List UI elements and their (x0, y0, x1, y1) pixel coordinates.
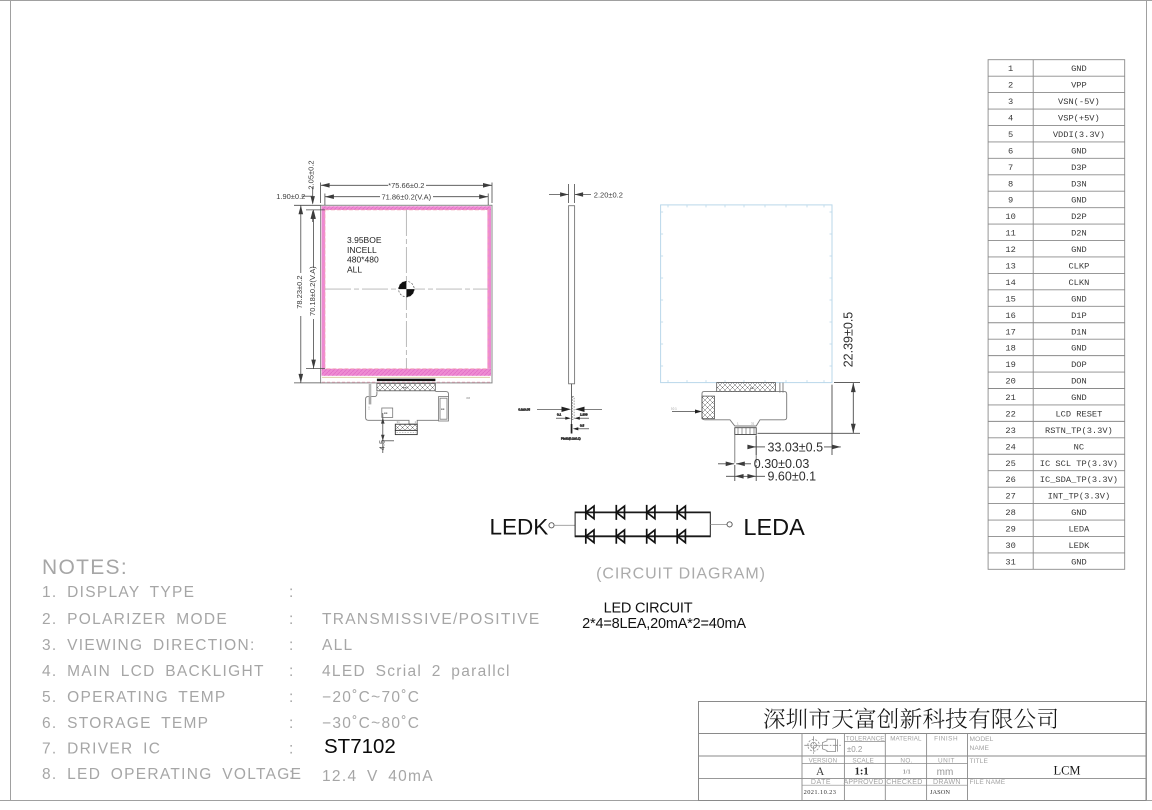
svg-text:NO.: NO. (900, 758, 913, 765)
svg-text:A: A (816, 766, 825, 778)
svg-text:11: 11 (1005, 229, 1015, 239)
svg-text:6: 6 (1008, 146, 1013, 156)
svg-text:1.90±0.2: 1.90±0.2 (276, 192, 305, 201)
svg-text:D2P: D2P (1071, 212, 1087, 222)
svg-text:GND: GND (1071, 294, 1087, 304)
svg-text:12.4 V 40mA: 12.4 V 40mA (322, 768, 434, 785)
svg-text:0.5: 0.5 (580, 424, 585, 428)
svg-text:1: 1 (737, 422, 739, 426)
svg-text:TITLE: TITLE (970, 758, 989, 765)
svg-text:2: 2 (1008, 81, 1013, 91)
svg-text:−30˚C~80˚C: −30˚C~80˚C (322, 715, 420, 732)
svg-text:D2N: D2N (1071, 229, 1087, 239)
svg-text:1/1: 1/1 (903, 769, 911, 776)
svg-text:13: 13 (1005, 262, 1015, 272)
svg-text:GND: GND (1071, 64, 1087, 74)
svg-text:D1P: D1P (1071, 311, 1087, 321)
svg-text:DOP: DOP (1071, 360, 1087, 370)
svg-text:■■□: ■■□ (750, 386, 756, 390)
svg-text:DON: DON (1071, 377, 1087, 387)
svg-text:12: 12 (1005, 245, 1015, 255)
svg-text:LCM: LCM (1053, 763, 1080, 777)
svg-text:22: 22 (1005, 409, 1015, 419)
svg-text:2. POLARIZER MODE: 2. POLARIZER MODE (42, 611, 228, 628)
svg-text:DRAWN: DRAWN (933, 779, 961, 786)
svg-text:(CIRCUIT DIAGRAM): (CIRCUIT DIAGRAM) (596, 565, 766, 582)
svg-text:33.03±0.5: 33.03±0.5 (768, 440, 824, 454)
svg-text:23: 23 (1005, 426, 1015, 436)
svg-text::: : (289, 584, 295, 601)
svg-text:VSN(-5V): VSN(-5V) (1058, 97, 1100, 107)
svg-text:78.23±0.2: 78.23±0.2 (295, 275, 304, 308)
svg-text:APPROVED: APPROVED (844, 779, 884, 786)
svg-text:15: 15 (1005, 294, 1015, 304)
svg-text::: : (289, 741, 295, 758)
svg-text:ST7102: ST7102 (324, 735, 396, 758)
svg-text:NC: NC (1074, 442, 1084, 452)
svg-text:LEDA: LEDA (743, 514, 805, 540)
svg-text:FINISH: FINISH (934, 735, 958, 742)
svg-text:D1N: D1N (1071, 327, 1087, 337)
svg-text:19: 19 (1005, 360, 1015, 370)
svg-text:■■: ■■ (441, 407, 445, 411)
svg-text:SCALE: SCALE (852, 758, 873, 765)
svg-text:21: 21 (1005, 393, 1015, 403)
svg-text:2.20±0.2: 2.20±0.2 (594, 190, 623, 199)
svg-text:□□: □□ (367, 406, 371, 410)
svg-text:0.1: 0.1 (557, 413, 562, 417)
svg-text:JASON: JASON (930, 789, 950, 796)
svg-text:VSP(+5V): VSP(+5V) (1058, 114, 1100, 124)
svg-text:GND: GND (1071, 508, 1087, 518)
svg-text:GND: GND (1071, 393, 1087, 403)
svg-text:±0.2: ±0.2 (847, 745, 863, 754)
svg-text:24: 24 (1005, 442, 1015, 452)
svg-text:7: 7 (1008, 163, 1013, 173)
svg-text:GND: GND (1071, 344, 1087, 354)
svg-text::: : (289, 689, 295, 706)
svg-text:25: 25 (1005, 459, 1015, 469)
svg-text:30: 30 (1005, 541, 1015, 551)
svg-text:−20˚C~70˚C: −20˚C~70˚C (322, 689, 420, 706)
svg-text:8. LED OPERATING VOLTAGE: 8. LED OPERATING VOLTAGE (42, 766, 302, 783)
svg-text:GND: GND (1071, 245, 1087, 255)
svg-text:■■: ■■ (384, 411, 388, 415)
svg-text:70.18±0.2(V.A): 70.18±0.2(V.A) (308, 266, 317, 316)
svg-text:FILE NAME: FILE NAME (970, 779, 1006, 786)
svg-text:RSTN_TP(3.3V): RSTN_TP(3.3V) (1045, 426, 1113, 436)
svg-text:NOTES:: NOTES: (42, 556, 128, 579)
svg-text:4LED Scrial 2 parallcl: 4LED Scrial 2 parallcl (322, 663, 511, 680)
svg-text:GND: GND (1071, 557, 1087, 567)
svg-text:71.86±0.2(V.A): 71.86±0.2(V.A) (381, 192, 431, 201)
svg-text:4: 4 (1008, 114, 1013, 124)
svg-text:1: 1 (1008, 64, 1013, 74)
svg-text:1. DISPLAY TYPE: 1. DISPLAY TYPE (42, 584, 195, 601)
svg-text:TRANSMISSIVE/POSITIVE: TRANSMISSIVE/POSITIVE (322, 611, 541, 628)
svg-text:3M: 3M (466, 396, 471, 400)
svg-text:GND: GND (1071, 146, 1087, 156)
svg-text:10: 10 (1005, 212, 1015, 222)
svg-text:VPP: VPP (1071, 81, 1087, 91)
svg-text:INT_TP(3.3V): INT_TP(3.3V) (1048, 492, 1111, 502)
svg-text:9.60±0.1: 9.60±0.1 (768, 470, 817, 484)
svg-text:480*480: 480*480 (347, 255, 379, 265)
svg-text::: : (289, 663, 295, 680)
svg-text:LED CIRCUIT: LED CIRCUIT (604, 601, 693, 617)
svg-text:5. OPERATING TEMP: 5. OPERATING TEMP (42, 689, 227, 706)
svg-text:2.05±0.2: 2.05±0.2 (306, 160, 315, 189)
svg-text::: : (289, 637, 295, 654)
svg-text:16: 16 (1005, 311, 1015, 321)
svg-text:4.5: 4.5 (377, 440, 386, 450)
svg-text:D3P: D3P (1071, 163, 1087, 173)
svg-text:CHECKED: CHECKED (886, 779, 922, 786)
svg-text:31: 31 (751, 422, 755, 426)
svg-text:9: 9 (1008, 196, 1013, 206)
svg-text:1: 1 (415, 420, 417, 424)
svg-text::: : (289, 611, 295, 628)
svg-text:ALL: ALL (347, 264, 362, 274)
svg-text:20: 20 (1005, 377, 1015, 387)
svg-text:GND: GND (1071, 196, 1087, 206)
svg-text:NAME: NAME (970, 745, 990, 752)
svg-text:1:1: 1:1 (855, 767, 869, 778)
svg-text:3. VIEWING DIRECTION:: 3. VIEWING DIRECTION: (42, 637, 256, 654)
svg-text:CLKN: CLKN (1068, 278, 1089, 288)
svg-text:LCD RESET: LCD RESET (1055, 409, 1102, 419)
svg-text:*75.66±0.2: *75.66±0.2 (388, 181, 424, 190)
svg-text:2*4=8LEA,20mA*2=40mA: 2*4=8LEA,20mA*2=40mA (582, 616, 746, 632)
svg-text:17: 17 (1005, 327, 1015, 337)
svg-text:TOLERANCE: TOLERANCE (846, 735, 885, 742)
svg-text:27: 27 (1005, 492, 1015, 502)
svg-text:2021.10.23: 2021.10.23 (804, 789, 837, 796)
svg-text:D3N: D3N (1071, 179, 1087, 189)
svg-text:26: 26 (1005, 475, 1015, 485)
svg-text:VERSION: VERSION (809, 758, 838, 765)
svg-text:28: 28 (1005, 508, 1015, 518)
svg-text:VDDI(3.3V): VDDI(3.3V) (1053, 130, 1105, 140)
svg-text:29: 29 (1005, 525, 1015, 535)
svg-text:ALL: ALL (322, 637, 353, 654)
svg-text:Pin31(0.2±0.1): Pin31(0.2±0.1) (561, 437, 581, 441)
svg-text:31: 31 (1005, 557, 1015, 567)
svg-text:MATERIAL: MATERIAL (890, 735, 922, 742)
svg-text:INCELL: INCELL (347, 245, 377, 255)
svg-text:IC SCL TP(3.3V): IC SCL TP(3.3V) (1040, 459, 1118, 469)
svg-text:10.1: 10.1 (671, 407, 677, 411)
svg-text:1.309: 1.309 (580, 413, 588, 417)
svg-text:LEDK: LEDK (490, 515, 549, 540)
svg-text:6. STORAGE TEMP: 6. STORAGE TEMP (42, 715, 209, 732)
svg-text:5: 5 (1008, 130, 1013, 140)
svg-text:CLKP: CLKP (1068, 262, 1089, 272)
svg-text:3.95BOE: 3.95BOE (347, 235, 382, 245)
svg-text:LEDK: LEDK (1068, 541, 1090, 551)
svg-text:3: 3 (1008, 97, 1013, 107)
svg-text:mm: mm (937, 767, 954, 778)
svg-text:7. DRIVER IC: 7. DRIVER IC (42, 741, 161, 758)
svg-text:22.39±0.5: 22.39±0.5 (841, 312, 855, 368)
svg-text:深圳市天富创新科技有限公司: 深圳市天富创新科技有限公司 (763, 702, 1059, 734)
svg-text:MODEL: MODEL (970, 736, 994, 743)
svg-text:IC_SDA_TP(3.3V): IC_SDA_TP(3.3V) (1040, 475, 1118, 485)
svg-text:18: 18 (1005, 344, 1015, 354)
svg-text::: : (289, 715, 295, 732)
svg-text:■■□: ■■□ (403, 386, 409, 390)
svg-text:31: 31 (397, 420, 401, 424)
svg-text:LEDA: LEDA (1068, 525, 1090, 535)
svg-text:0.3±0.05: 0.3±0.05 (518, 408, 530, 412)
svg-text::: : (289, 766, 295, 783)
svg-text:UNIT: UNIT (938, 758, 955, 765)
svg-text:4. MAIN LCD BACKLIGHT: 4. MAIN LCD BACKLIGHT (42, 663, 265, 680)
svg-text:DATE: DATE (811, 779, 831, 786)
svg-text:8: 8 (1008, 179, 1013, 189)
svg-text:14: 14 (1005, 278, 1015, 288)
